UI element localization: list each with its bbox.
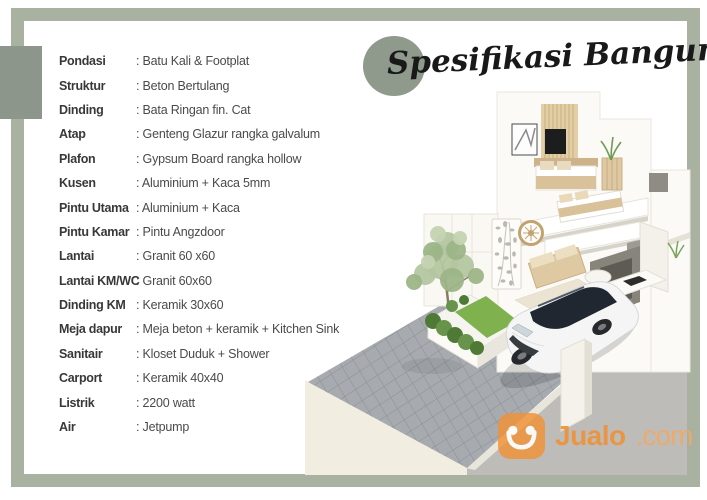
spec-value: : Keramik 30x60	[136, 298, 223, 312]
spec-value: : Beton Bertulang	[136, 79, 229, 93]
spec-value: : Genteng Glazur rangka galvalum	[136, 127, 320, 141]
spec-value: : Jetpump	[136, 420, 189, 434]
spec-row: Lantai : Granit 60 x60	[59, 244, 339, 268]
spec-label: Air	[59, 420, 136, 434]
spec-row: Dinding : Bata Ringan fin. Cat	[59, 98, 339, 122]
facade-accent-panel	[649, 173, 668, 192]
spec-label: Pintu Utama	[59, 201, 136, 215]
spec-row: Pondasi : Batu Kali & Footplat	[59, 49, 339, 73]
jualo-watermark: Jualo.com	[498, 413, 692, 459]
spec-value: : Keramik 40x40	[136, 371, 223, 385]
spec-row: Lantai KM/WC : Granit 60x60	[59, 269, 339, 293]
spec-value: : Granit 60 x60	[136, 249, 215, 263]
spec-label: Sanitair	[59, 347, 136, 361]
spec-label: Kusen	[59, 176, 136, 190]
spec-label: Plafon	[59, 152, 136, 166]
spec-label: Pintu Kamar	[59, 225, 136, 239]
spec-row: Listrik : 2200 watt	[59, 390, 339, 414]
spec-value: : Meja beton + keramik + Kitchen Sink	[136, 322, 339, 336]
jualo-bag-smile-icon	[498, 413, 545, 459]
jualo-brand-text: Jualo	[555, 420, 626, 452]
carved-partition-panel	[492, 219, 521, 289]
spec-label: Dinding	[59, 103, 136, 117]
spec-row: Air : Jetpump	[59, 415, 339, 439]
spec-row: Kusen : Aluminium + Kaca 5mm	[59, 171, 339, 195]
spec-value: : Kloset Duduk + Shower	[136, 347, 269, 361]
spec-row: Struktur : Beton Bertulang	[59, 73, 339, 97]
wardrobe	[602, 158, 622, 190]
spec-value: : Gypsum Board rangka hollow	[136, 152, 301, 166]
spec-label: Listrik	[59, 396, 136, 410]
spec-row: Carport : Keramik 40x40	[59, 366, 339, 390]
spec-row: Sanitair : Kloset Duduk + Shower	[59, 342, 339, 366]
spec-label: Carport	[59, 371, 136, 385]
bed-upper	[534, 158, 598, 190]
spec-value: : Granit 60x60	[136, 274, 212, 288]
tv-screen	[545, 129, 566, 154]
spec-value: : Pintu Angzdoor	[136, 225, 225, 239]
spec-row: Pintu Kamar : Pintu Angzdoor	[59, 220, 339, 244]
flyer-page: Spesifikasi Bangunan Pondasi : Batu Kali…	[0, 0, 707, 500]
spec-value: : Bata Ringan fin. Cat	[136, 103, 250, 117]
spec-row: Pintu Utama : Aluminium + Kaca	[59, 195, 339, 219]
spec-row: Dinding KM : Keramik 30x60	[59, 293, 339, 317]
round-wall-decor	[520, 222, 543, 245]
spec-row: Atap : Genteng Glazur rangka galvalum	[59, 122, 339, 146]
spec-label: Lantai	[59, 249, 136, 263]
wall-art-frame	[512, 124, 537, 155]
spec-value: : Batu Kali & Footplat	[136, 54, 249, 68]
spec-label: Dinding KM	[59, 298, 136, 312]
spec-label: Atap	[59, 127, 136, 141]
spec-value: : Aluminium + Kaca 5mm	[136, 176, 270, 190]
spec-value: : 2200 watt	[136, 396, 195, 410]
jualo-tld-text: .com	[636, 420, 693, 452]
spec-label: Meja dapur	[59, 322, 136, 336]
spec-value: : Aluminium + Kaca	[136, 201, 240, 215]
spec-label: Struktur	[59, 79, 136, 93]
spec-label: Lantai KM/WC	[59, 274, 136, 288]
spec-list: Pondasi : Batu Kali & Footplat Struktur …	[59, 49, 339, 439]
spec-row: Plafon : Gypsum Board rangka hollow	[59, 147, 339, 171]
spec-row: Meja dapur : Meja beton + keramik + Kitc…	[59, 317, 339, 341]
spec-label: Pondasi	[59, 54, 136, 68]
left-accent-block	[0, 46, 42, 119]
